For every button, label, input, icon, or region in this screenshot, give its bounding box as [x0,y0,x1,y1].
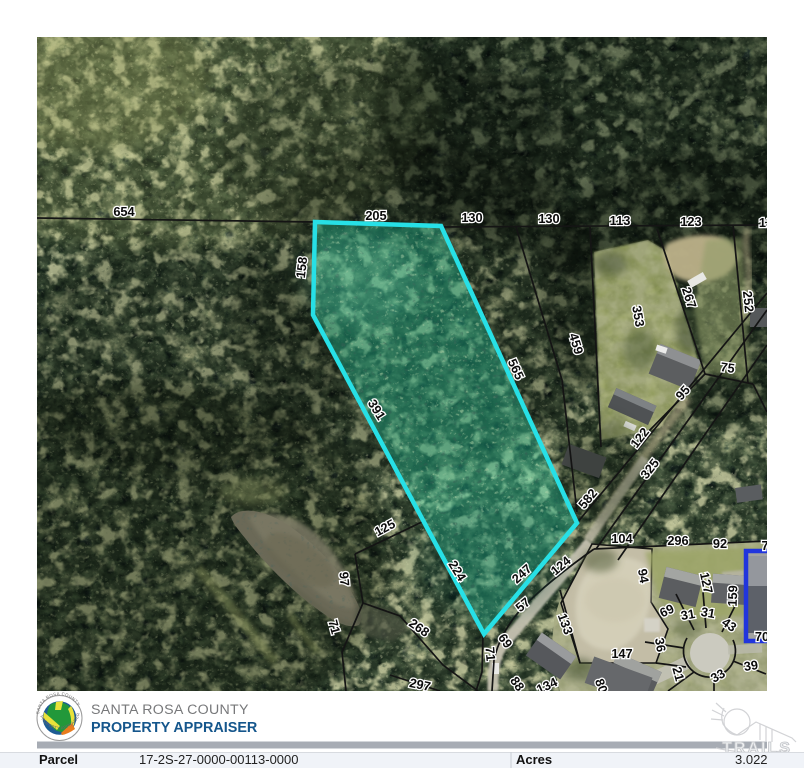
svg-text:130: 130 [538,211,559,226]
svg-text:39: 39 [743,657,759,674]
svg-text:159: 159 [725,585,741,607]
svg-text:PROPERTY APPRAISER: PROPERTY APPRAISER [91,720,258,736]
svg-text:31: 31 [680,606,697,623]
svg-text:71: 71 [482,646,498,661]
svg-text:130: 130 [461,210,482,225]
svg-text:205: 205 [365,208,386,223]
svg-text:296: 296 [667,533,688,548]
svg-text:3.022: 3.022 [735,752,768,767]
svg-text:Acres: Acres [516,752,552,767]
svg-text:97: 97 [336,571,352,586]
svg-text:123: 123 [680,214,701,229]
svg-text:147: 147 [611,646,632,661]
svg-text:Parcel: Parcel [39,752,78,767]
svg-text:17-2S-27-0000-00113-0000: 17-2S-27-0000-00113-0000 [139,752,299,767]
svg-text:92: 92 [713,536,727,551]
svg-text:75: 75 [720,359,736,376]
svg-text:31: 31 [700,604,717,621]
svg-text:36: 36 [652,637,669,654]
svg-text:654: 654 [113,204,135,219]
svg-text:113: 113 [610,213,631,228]
svg-text:252: 252 [740,290,757,313]
svg-text:70: 70 [755,629,769,644]
svg-text:SANTA ROSA COUNTY: SANTA ROSA COUNTY [91,702,249,718]
svg-text:158: 158 [293,256,310,279]
svg-text:104: 104 [611,531,633,546]
